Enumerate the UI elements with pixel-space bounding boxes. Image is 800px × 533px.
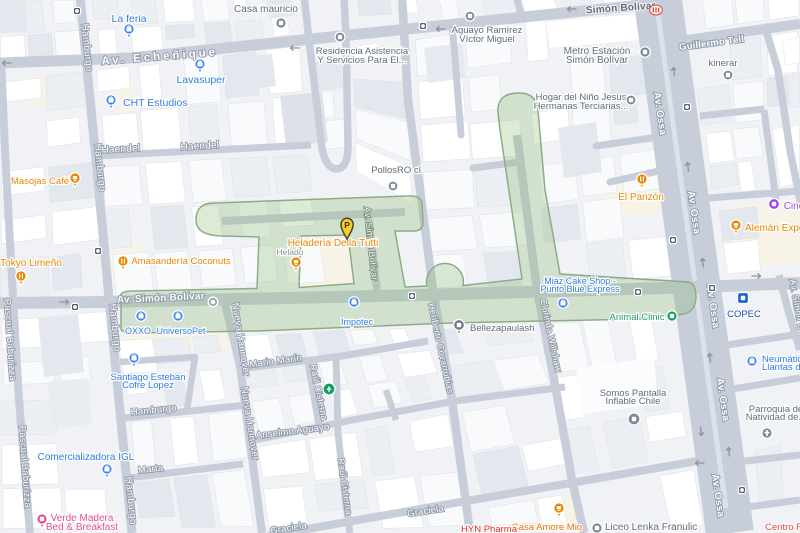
svg-text:Hermanas Terciarias...: Hermanas Terciarias... [534,101,629,112]
svg-text:Alemán Expert: Alemán Expert [745,223,800,234]
svg-text:Animal Clinic: Animal Clinic [610,312,665,323]
svg-text:COPEC: COPEC [727,309,761,320]
svg-text:Haendel: Haendel [101,143,140,156]
svg-text:Punto Blue Express: Punto Blue Express [540,284,620,294]
svg-text:Víctor Miguel: Víctor Miguel [459,34,514,45]
svg-text:Centro R...: Centro R... [765,522,800,533]
svg-text:Liceo Lenka Franulic: Liceo Lenka Franulic [605,522,697,533]
svg-text:Casa Amore Mio: Casa Amore Mio [512,522,582,533]
svg-text:Amasandería Coconuts: Amasandería Coconuts [131,256,231,267]
svg-text:P: P [344,220,350,230]
svg-text:Ciné: Ciné [784,201,800,212]
svg-text:La feria: La feria [111,13,146,25]
svg-text:Comercializadora IGL: Comercializadora IGL [38,452,135,463]
svg-text:Y Servicios Para El...: Y Servicios Para El... [317,55,406,66]
svg-text:CHT Estudios: CHT Estudios [123,97,188,109]
svg-text:Haendel: Haendel [180,140,219,153]
svg-text:UniversoPet: UniversoPet [156,326,206,336]
svg-text:Natividad de...: Natividad de... [746,412,800,423]
svg-text:Tokyo Limeño: Tokyo Limeño [0,258,62,269]
svg-text:kinerar: kinerar [708,58,737,69]
svg-text:Cofre Lopez: Cofre Lopez [122,380,174,391]
svg-text:Llantas de...: Llantas de... [762,362,800,373]
svg-text:Inflable Chile: Inflable Chile [606,396,661,407]
svg-text:PollosRO cl: PollosRO cl [371,165,421,176]
svg-text:Bellezapaulash: Bellezapaulash [470,323,534,334]
svg-text:Lavasuper: Lavasuper [176,74,226,86]
svg-text:Masojas Café: Masojas Café [11,176,69,187]
svg-text:Casa mauricio: Casa mauricio [234,4,298,15]
svg-text:Impotec: Impotec [341,317,374,327]
svg-text:Helado: Helado [277,247,304,257]
svg-text:OXXO: OXXO [125,326,151,336]
svg-text:El Panzón: El Panzón [618,192,664,203]
svg-text:Bed & Breakfast: Bed & Breakfast [46,522,118,533]
svg-text:Simón Bolívar: Simón Bolívar [566,55,629,66]
svg-text:HYN Pharma: HYN Pharma [461,524,518,533]
